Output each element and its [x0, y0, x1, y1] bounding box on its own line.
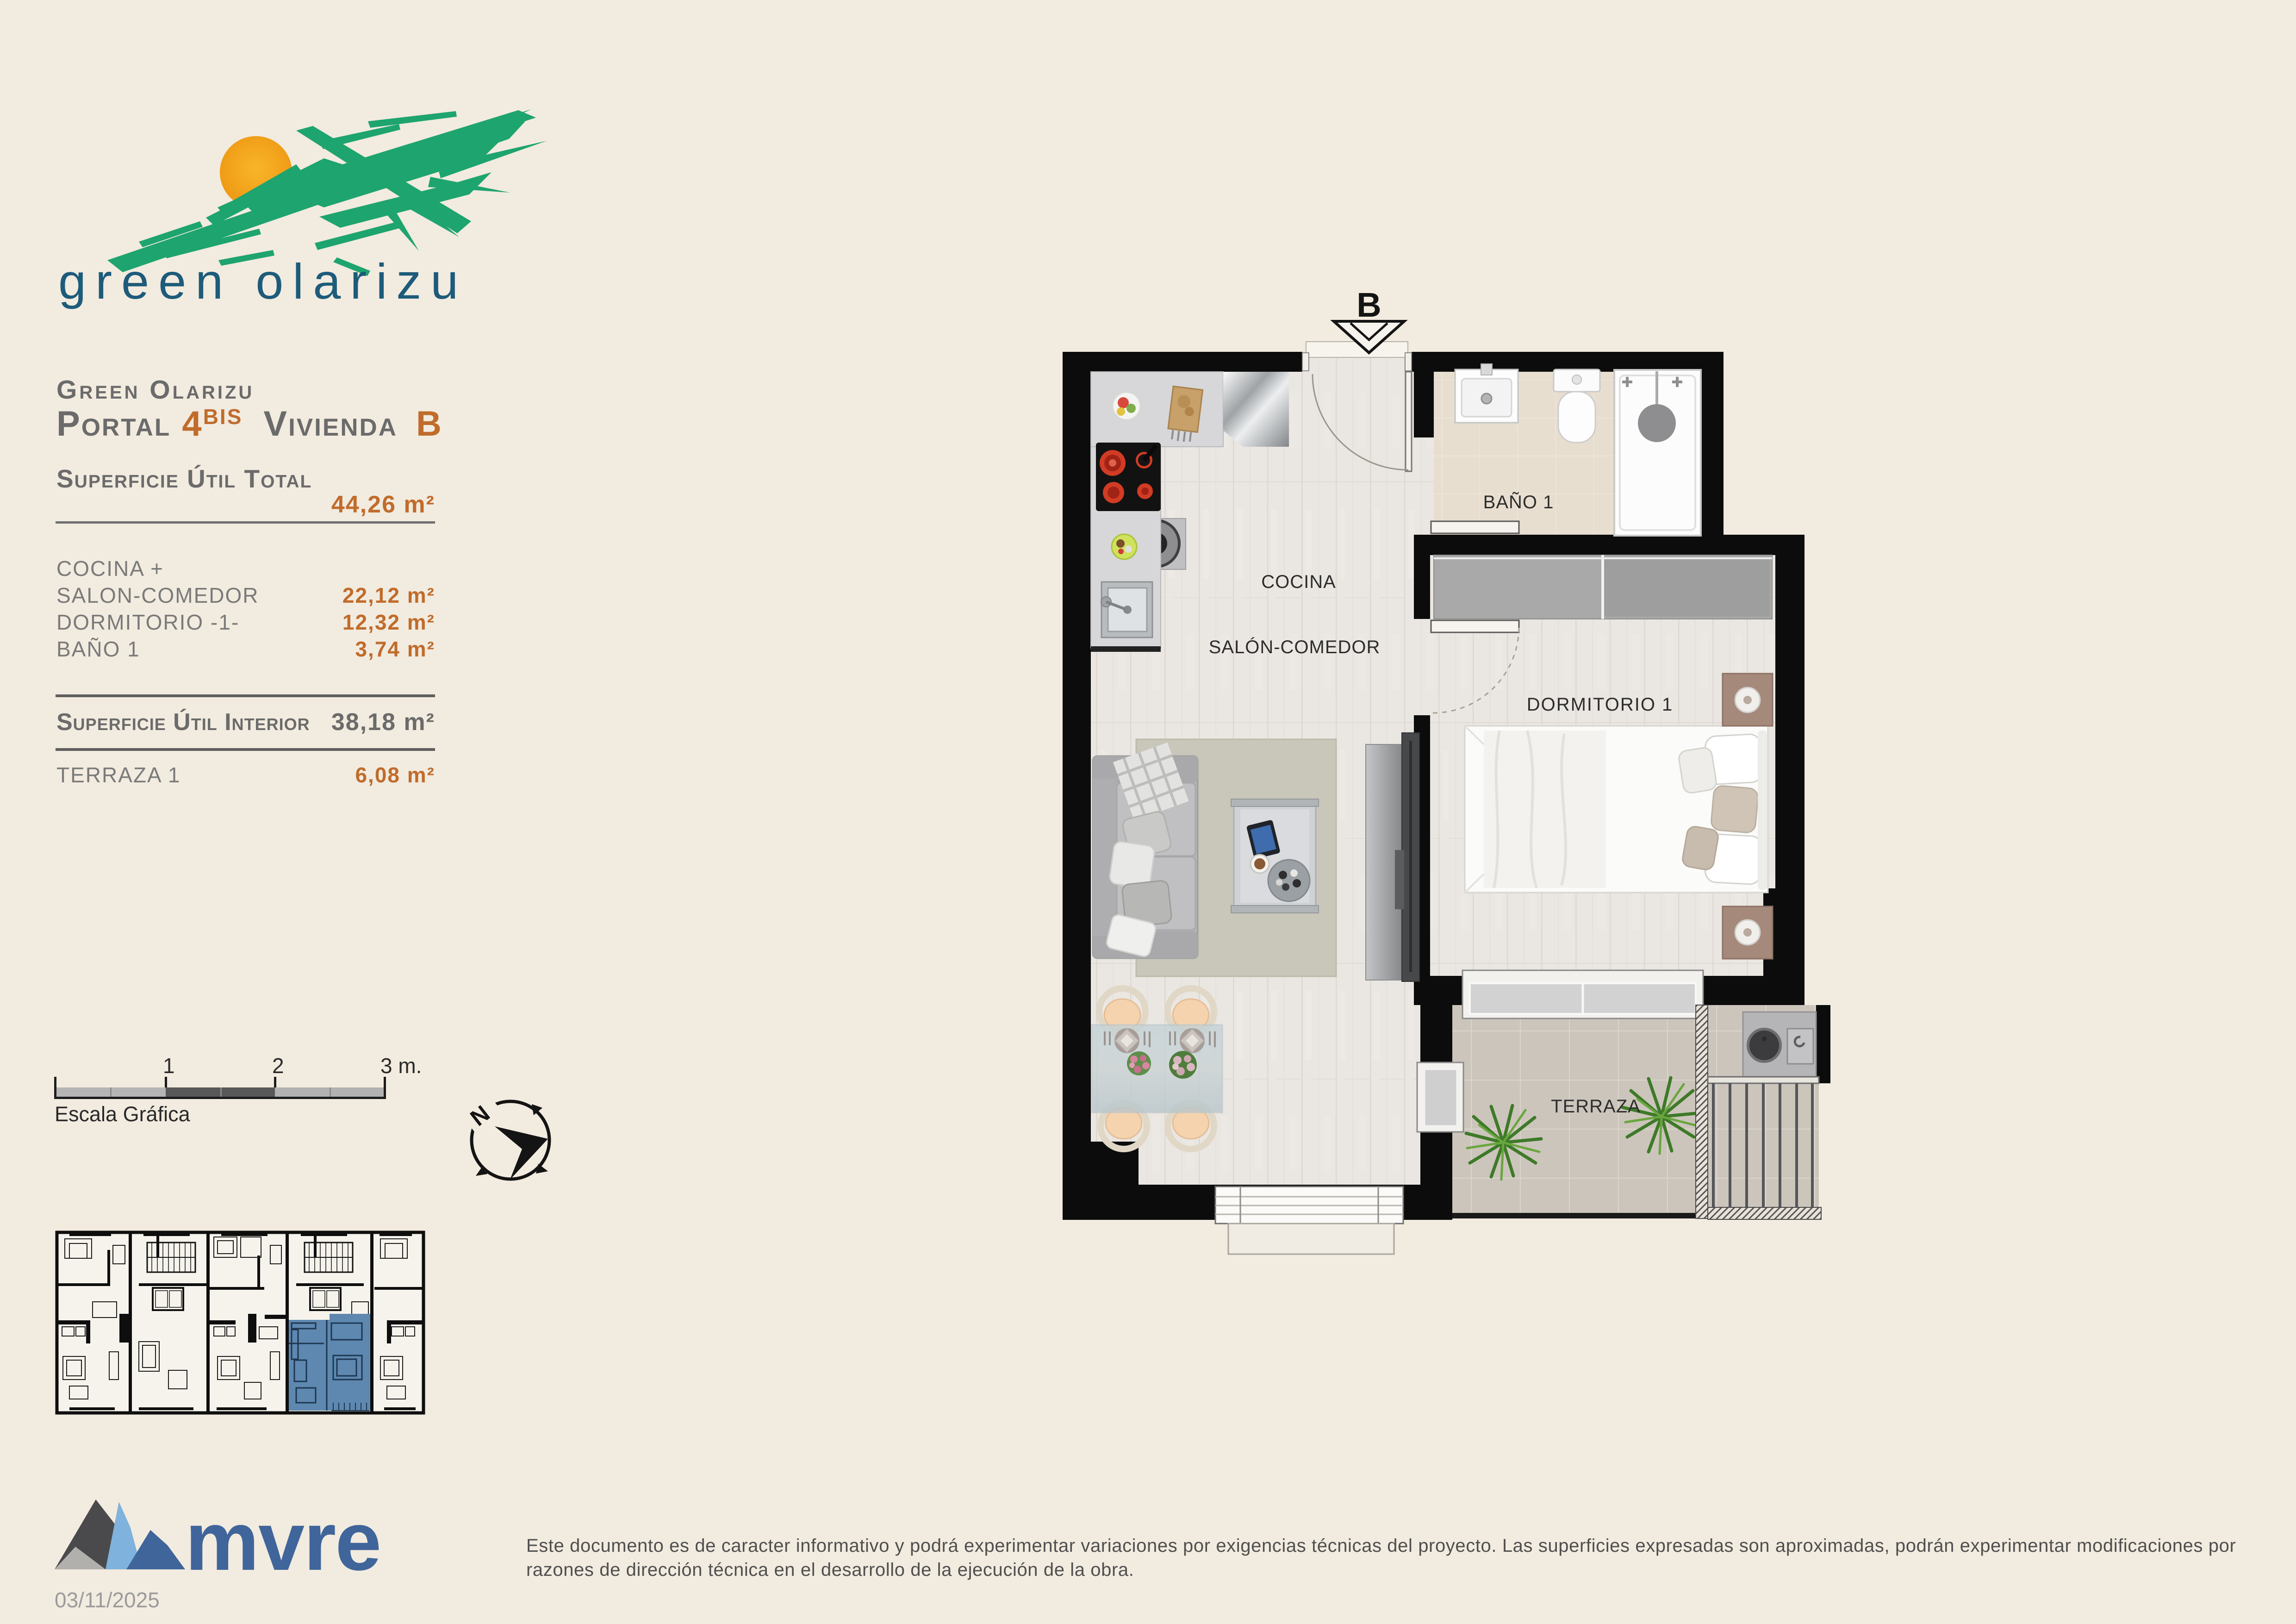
svg-text:44,26 m²: 44,26 m² — [331, 491, 435, 518]
svg-text:DORMITORIO -1-: DORMITORIO -1- — [56, 610, 239, 634]
svg-text:12,32 m²: 12,32 m² — [342, 610, 435, 634]
svg-text:green olarizu: green olarizu — [58, 253, 467, 309]
svg-text:razones de dirección técnica e: razones de dirección técnica en el desar… — [526, 1560, 1134, 1580]
svg-text:COCINA +: COCINA + — [56, 556, 164, 581]
svg-text:Superficie Útil Total: Superficie Útil Total — [56, 464, 312, 493]
svg-text:TERRAZA: TERRAZA — [1551, 1096, 1641, 1117]
svg-text:COCINA: COCINA — [1261, 572, 1336, 592]
svg-text:Green Olarizu: Green Olarizu — [56, 375, 254, 405]
svg-text:SALON-COMEDOR: SALON-COMEDOR — [56, 583, 259, 607]
svg-text:B: B — [1356, 286, 1381, 324]
svg-text:SALÓN-COMEDOR: SALÓN-COMEDOR — [1209, 637, 1381, 657]
svg-text:1: 1 — [163, 1054, 175, 1078]
svg-text:03/11/2025: 03/11/2025 — [55, 1588, 160, 1612]
svg-text:Este documento es de caracter: Este documento es de caracter informativ… — [526, 1536, 2236, 1556]
svg-text:38,18 m²: 38,18 m² — [331, 709, 435, 736]
svg-text:BAÑO 1: BAÑO 1 — [56, 637, 140, 661]
svg-text:3 m.: 3 m. — [380, 1054, 422, 1078]
svg-text:TERRAZA 1: TERRAZA 1 — [56, 763, 181, 787]
svg-text:22,12 m²: 22,12 m² — [342, 583, 435, 607]
svg-text:2: 2 — [272, 1054, 284, 1078]
svg-text:mvre: mvre — [185, 1495, 380, 1588]
svg-text:Escala Gráfica: Escala Gráfica — [55, 1102, 191, 1126]
svg-text:Superficie Útil Interior: Superficie Útil Interior — [56, 709, 310, 736]
svg-text:BAÑO 1: BAÑO 1 — [1483, 492, 1554, 512]
svg-text:DORMITORIO 1: DORMITORIO 1 — [1527, 694, 1674, 715]
svg-text:3,74 m²: 3,74 m² — [355, 637, 435, 661]
svg-text:6,08 m²: 6,08 m² — [355, 763, 435, 787]
